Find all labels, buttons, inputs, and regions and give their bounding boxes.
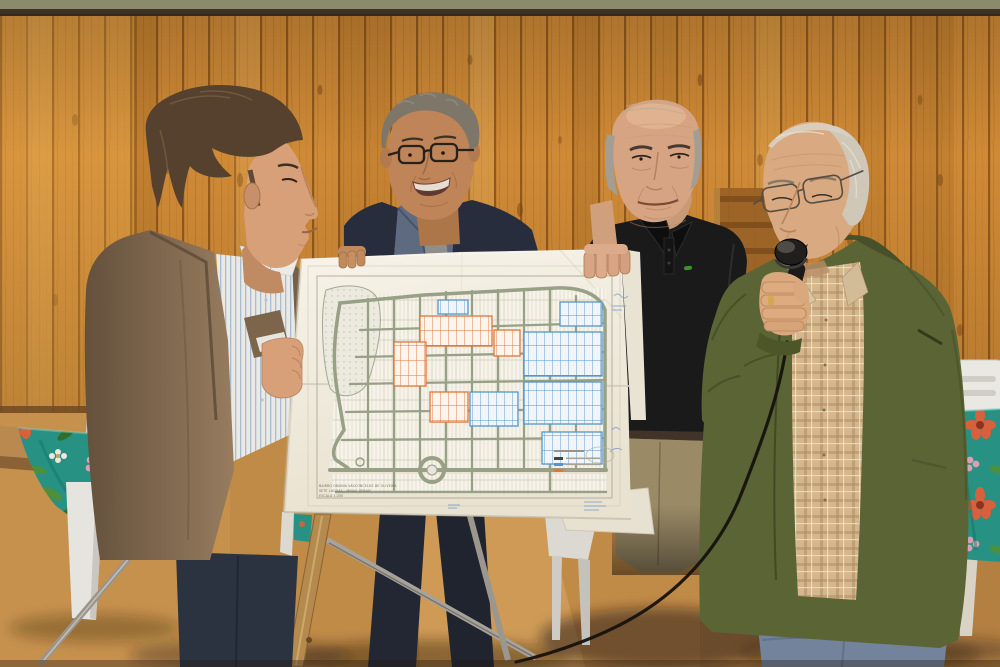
map-title-line-2: SETE LAGOAS - MINAS GERAIS	[319, 489, 371, 493]
map-title-line-1: BAIRRO ONDINA VASCONCELOS DE OLIVEIRA	[319, 484, 397, 488]
scene-canvas: BAIRRO ONDINA VASCONCELOS DE OLIVEIRA SE…	[0, 0, 1000, 667]
background-glimpse-cloth	[294, 514, 312, 542]
bottom-edge-shadow	[0, 660, 1000, 667]
map-title-line-3: ESCALA 1:200	[319, 494, 343, 498]
man-1-blazer	[85, 230, 234, 560]
ceiling-beam	[0, 0, 1000, 9]
man-2-hand	[338, 246, 366, 268]
map-document: BAIRRO ONDINA VASCONCELOS DE OLIVEIRA SE…	[284, 249, 631, 519]
background-glimpse-white	[280, 512, 294, 556]
gold-ring	[768, 296, 774, 305]
man-1-ear	[244, 183, 260, 209]
photo-scene: BAIRRO ONDINA VASCONCELOS DE OLIVEIRA SE…	[0, 0, 1000, 667]
